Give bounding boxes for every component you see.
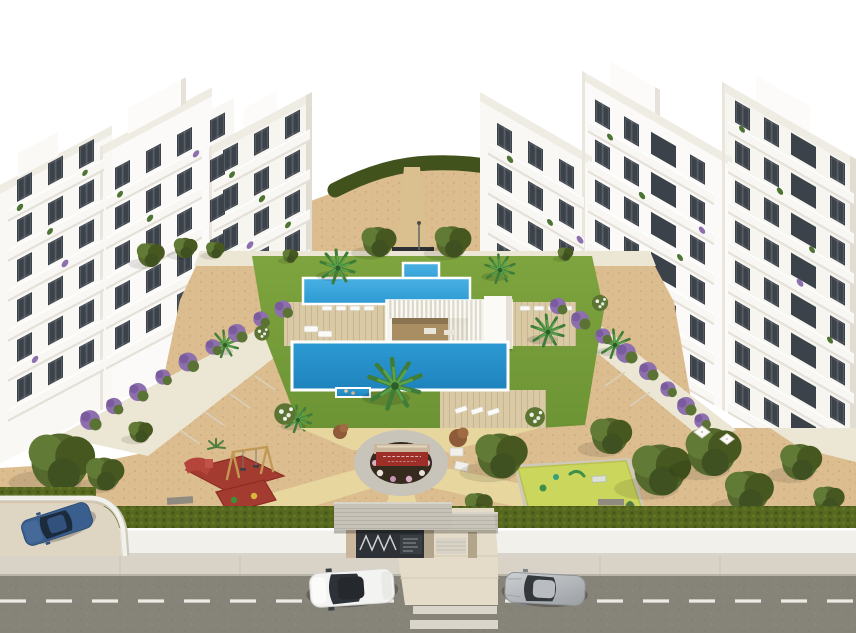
ride-on-toy (231, 497, 237, 503)
architectural-render (0, 0, 856, 633)
swing-seat (253, 465, 259, 468)
spring-rider (553, 474, 559, 480)
crosswalk-stripe (410, 620, 498, 629)
monument-sign (374, 444, 430, 466)
gate-pillar (468, 532, 477, 558)
ride-on-toy (251, 493, 257, 499)
penthouse-shade (181, 77, 186, 106)
mass-seam (722, 82, 725, 412)
gate-canopy (334, 502, 452, 530)
sign-red-panel (376, 452, 428, 466)
render-canvas (0, 0, 856, 633)
spring-rider (540, 485, 547, 492)
pavilion-cube-shade (506, 296, 512, 348)
gate-pillar (346, 530, 356, 558)
play-cart (592, 476, 606, 483)
park-bench (598, 499, 624, 506)
canopy-edge (334, 502, 452, 505)
gate-canopy-low (452, 512, 498, 530)
crosswalk-stripe (413, 606, 497, 614)
swing-seat (240, 468, 246, 471)
penthouse-shade (655, 87, 660, 116)
gate-pillar (424, 530, 434, 558)
gate-canopy-shadow (334, 530, 498, 534)
canopy-edge (452, 512, 498, 514)
pavilion-pergola (448, 300, 482, 345)
pavilion-table (424, 328, 436, 334)
pavilion-table (444, 330, 454, 335)
pavilion-pergola (388, 300, 448, 319)
swimmer (351, 391, 355, 395)
plaza-bench (450, 448, 463, 456)
swimmer (344, 389, 348, 393)
lamp-head (417, 221, 421, 225)
